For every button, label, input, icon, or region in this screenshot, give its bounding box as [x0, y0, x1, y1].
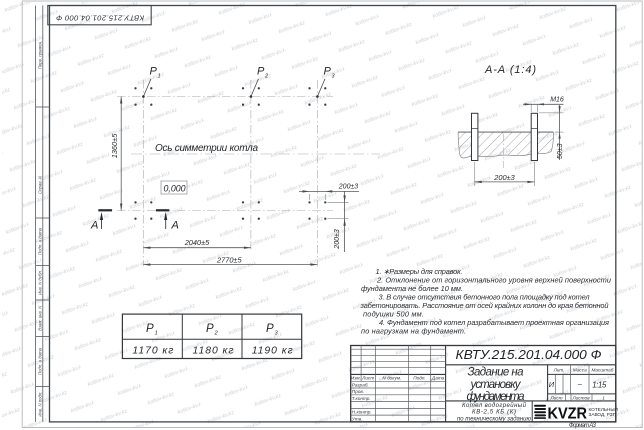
svg-text:1: 1 [158, 73, 161, 79]
svg-text:Инв. N подл.: Инв. N подл. [38, 391, 43, 416]
svg-text:Лист: Лист [361, 376, 374, 381]
svg-text:P: P [150, 66, 158, 78]
svg-text:Задание на: Задание на [468, 366, 524, 378]
svg-text:КВ-2,5 КБ (К): КВ-2,5 КБ (К) [472, 410, 516, 416]
svg-text:Инв. N дубл.: Инв. N дубл. [38, 270, 43, 295]
svg-text:А: А [171, 220, 179, 232]
svg-text:0,000: 0,000 [164, 183, 186, 193]
svg-text:Пров.: Пров. [352, 389, 364, 394]
svg-text:P: P [324, 66, 332, 78]
svg-text:по нагрузкам на фундамент.: по нагрузкам на фундамент. [361, 327, 466, 336]
svg-text:Т.контр.: Т.контр. [352, 396, 371, 401]
svg-text:Масса: Масса [573, 368, 587, 373]
svg-text:P: P [257, 66, 265, 78]
svg-text:1180 кг: 1180 кг [193, 345, 234, 356]
svg-text:А-А (1:4): А-А (1:4) [484, 64, 536, 76]
svg-text:Котел водогрейный: Котел водогрейный [462, 402, 527, 409]
svg-text:Подп. и дата: Подп. и дата [38, 227, 43, 255]
svg-text:Лист: Лист [549, 395, 562, 400]
svg-text:Перв. примен.: Перв. примен. [38, 41, 43, 70]
svg-text:И: И [549, 380, 555, 389]
svg-text:2: 2 [264, 73, 268, 79]
svg-text:Разраб.: Разраб. [352, 382, 369, 387]
svg-text:2770±5: 2770±5 [216, 255, 242, 264]
svg-text:фундамента: фундамента [467, 391, 525, 403]
svg-text:Лит.: Лит. [553, 368, 565, 373]
svg-text:200±3: 200±3 [338, 183, 359, 190]
svg-text:1170 кг: 1170 кг [132, 345, 173, 356]
svg-text:1:15: 1:15 [592, 381, 607, 390]
svg-text:Ось симметрии котла: Ось симметрии котла [155, 143, 258, 154]
svg-text:Подп. и дата: Подп. и дата [38, 347, 43, 375]
svg-text:Утв.: Утв. [352, 416, 363, 421]
svg-text:–: – [577, 380, 583, 389]
svg-text:Изм.: Изм. [351, 376, 361, 381]
svg-text:1: 1 [155, 330, 158, 336]
svg-text:200±3: 200±3 [334, 229, 341, 250]
svg-text:N докум.: N докум. [382, 376, 401, 381]
svg-text:KVZR: KVZR [548, 406, 588, 423]
svg-text:А: А [90, 220, 98, 232]
svg-text:КОТЕЛЬНЫЙ: КОТЕЛЬНЫЙ [589, 405, 618, 412]
svg-text:P: P [266, 323, 274, 335]
svg-text:1190 кг: 1190 кг [252, 345, 293, 356]
svg-text:50±3: 50±3 [557, 143, 564, 159]
svg-text:ЗАВОД, РЗП: ЗАВОД, РЗП [589, 412, 616, 417]
svg-text:Формат А3: Формат А3 [569, 423, 597, 429]
svg-text:2040±5: 2040±5 [184, 238, 210, 247]
svg-text:Справ. N: Справ. N [38, 175, 43, 194]
svg-text:КВТУ.215.201.04.000 Ф: КВТУ.215.201.04.000 Ф [456, 347, 602, 362]
svg-text:Н.контр.: Н.контр. [352, 410, 372, 415]
svg-text:Листов: Листов [571, 395, 590, 400]
svg-text:Подп.: Подп. [413, 376, 425, 381]
svg-text:по техническому заданию: по техническому заданию [457, 416, 531, 422]
svg-text:М16: М16 [550, 97, 564, 104]
svg-text:1360±5: 1360±5 [110, 133, 119, 158]
svg-text:Взам. инв. N: Взам. инв. N [38, 305, 43, 331]
svg-text:Масштаб: Масштаб [591, 368, 613, 373]
svg-text:Дата: Дата [431, 376, 445, 381]
svg-text:P: P [206, 323, 214, 335]
svg-text:1: 1 [602, 395, 605, 400]
svg-text:200±3: 200±3 [493, 173, 515, 182]
svg-text:установку: установку [470, 379, 522, 391]
svg-text:P: P [146, 323, 154, 335]
svg-text:КВТУ.215.201.04.000 Ф: КВТУ.215.201.04.000 Ф [56, 13, 144, 22]
